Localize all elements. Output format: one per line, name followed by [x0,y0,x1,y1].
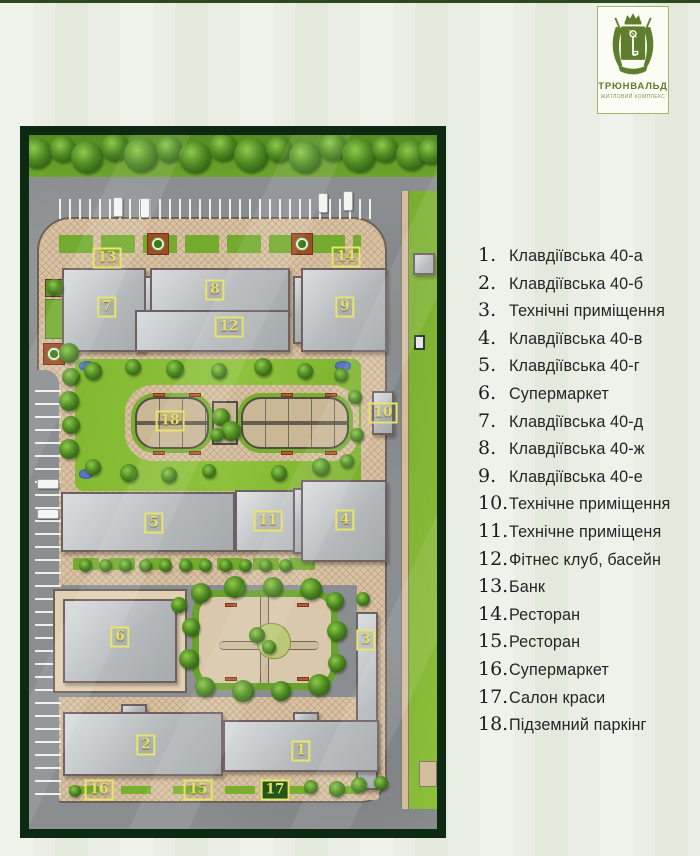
tree-icon [59,391,79,411]
legend-item-11: 11.Технічне приміщеня [478,522,693,550]
legend-item-number: 2. [478,274,509,293]
legend-item-number: 12. [478,550,509,569]
bench-icon [189,393,201,397]
map-marker-15: 15 [184,780,213,801]
legend-item-number: 16. [478,660,509,679]
tree-icon [312,458,330,476]
tree-icon [62,416,80,434]
legend-item-label: Клавдіївська 40-б [509,276,643,292]
map-marker-7: 7 [97,297,116,318]
tree-icon [62,368,80,386]
tree-icon [340,454,354,468]
tree-icon [297,363,313,379]
utility-box [414,335,425,350]
tree-icon [85,459,101,475]
map-marker-10: 10 [369,403,398,424]
map-marker-5: 5 [144,513,163,534]
tree-icon [171,597,187,613]
page: ТРЮНВАЛЬД ЖИТЛОВИЙ КОМПЛЕКС [0,0,700,856]
lawn-right [409,191,437,809]
tree-icon [224,576,246,598]
legend-item-number: 11. [478,522,509,541]
map-marker-13: 13 [93,248,122,269]
map-marker-6: 6 [110,627,129,648]
tree-icon [179,559,192,572]
tree-icon [300,578,322,600]
parked-car-icon [37,479,59,489]
legend-item-label: Клавдіївська 40-г [509,358,640,374]
legend-item-3: 3.Технічні приміщення [478,301,693,329]
parking-stripes-left [35,381,61,795]
tree-icon [279,559,292,572]
legend-item-17: 17.Салон краси [478,688,693,716]
legend: 1.Клавдіївська 40-а2.Клавдіївська 40-б3.… [478,246,693,743]
entrance-structure [413,253,435,275]
tree-icon [79,559,92,572]
bench-icon [225,603,237,607]
tree-icon [271,681,291,701]
crest-icon [605,12,661,78]
legend-item-2: 2.Клавдіївська 40-б [478,274,693,302]
legend-item-label: Клавдіївська 40-е [509,469,643,485]
legend-item-15: 15.Ресторан [478,632,693,660]
legend-item-label: Фітнес клуб, басейн [509,552,661,568]
parked-car-icon [113,197,123,217]
site-plan-map: 123456789101112131415161718 [29,135,437,829]
legend-item-number: 9. [478,467,509,486]
tree-icon [71,141,103,173]
tree-icon [59,439,79,459]
legend-item-number: 1. [478,246,509,265]
parked-car-icon [37,509,59,519]
tree-icon [334,368,348,382]
map-marker-14: 14 [332,247,361,268]
map-marker-12: 12 [215,317,244,338]
legend-item-number: 18. [478,715,509,734]
map-marker-16: 16 [85,780,114,801]
tree-icon [254,358,272,376]
legend-item-number: 13. [478,577,509,596]
legend-item-number: 4. [478,329,509,348]
legend-item-4: 4.Клавдіївська 40-в [478,329,693,357]
tree-icon [99,559,112,572]
tree-icon [304,780,318,794]
tree-icon [161,467,177,483]
tree-icon [195,677,215,697]
logo-title: ТРЮНВАЛЬД [598,81,668,92]
tree-icon [179,649,199,669]
legend-item-label: Ресторан [509,607,580,623]
tree-icon [234,138,268,172]
tree-icon [262,640,276,654]
legend-item-number: 17. [478,688,509,707]
site-plan-frame: 123456789101112131415161718 [20,126,446,838]
tree-icon [348,390,362,404]
legend-item-18: 18.Підземний паркінг [478,715,693,743]
map-marker-18: 18 [156,411,185,432]
tree-icon [327,621,347,641]
logo: ТРЮНВАЛЬД ЖИТЛОВИЙ КОМПЛЕКС [597,6,669,114]
legend-item-number: 7. [478,412,509,431]
tree-icon [211,363,227,379]
bench-icon [153,393,165,397]
bench-icon [225,677,237,681]
tree-icon [372,136,398,162]
legend-item-9: 9.Клавдіївська 40-е [478,467,693,495]
tree-icon [182,618,200,636]
legend-item-number: 3. [478,301,509,320]
legend-item-label: Супермаркет [509,662,609,678]
tree-icon [124,138,158,172]
bench-icon [325,451,337,455]
tree-icon [199,559,212,572]
map-marker-8: 8 [205,280,224,301]
legend-item-label: Підземний паркінг [509,717,647,733]
tree-icon [328,654,346,672]
map-marker-1: 1 [291,741,310,762]
parterre-garden-right [241,397,349,449]
parked-car-icon [140,198,150,218]
legend-item-label: Клавдіївська 40-д [509,414,643,430]
map-marker-2: 2 [136,735,155,756]
legend-item-13: 13.Банк [478,577,693,605]
tree-icon [120,464,138,482]
tree-icon [191,583,211,603]
legend-item-14: 14.Ресторан [478,605,693,633]
map-marker-3: 3 [356,630,375,651]
tree-icon [271,465,287,481]
legend-item-number: 10. [478,494,509,513]
tree-icon [263,577,283,597]
parked-car-icon [318,193,328,213]
legend-item-label: Ресторан [509,634,580,650]
tree-icon [159,559,172,572]
legend-item-10: 10.Технічне приміщення [478,494,693,522]
logo-subtitle: ЖИТЛОВИЙ КОМПЛЕКС [601,94,666,100]
tree-icon [249,627,265,643]
flowerbed-medallion [291,233,313,255]
tree-icon [351,777,367,793]
tree-icon [166,360,184,378]
bench-icon [281,451,293,455]
legend-item-label: Клавдіївська 40-ж [509,441,645,457]
tree-icon [125,359,141,375]
legend-item-7: 7.Клавдіївська 40-д [478,412,693,440]
tree-icon [289,141,321,173]
tree-icon [219,559,232,572]
tree-icon [139,559,152,572]
tree-icon [259,559,272,572]
bench-icon [189,451,201,455]
bench-icon [297,603,309,607]
tree-icon [356,592,370,606]
map-marker-9: 9 [335,297,354,318]
tree-icon [202,464,216,478]
path-corner-tile [419,761,437,787]
tree-icon [239,559,252,572]
bench-icon [281,393,293,397]
tree-icon [59,343,79,363]
tree-icon [84,362,102,380]
legend-item-number: 15. [478,632,509,651]
legend-item-16: 16.Супермаркет [478,660,693,688]
map-marker-17: 17 [261,780,290,801]
building-12 [135,310,290,352]
top-divider-line [0,0,700,3]
tree-icon [350,428,364,442]
bench-icon [297,677,309,681]
tree-icon [418,138,437,164]
legend-item-12: 12.Фітнес клуб, басейн [478,550,693,578]
legend-item-label: Банк [509,579,545,595]
legend-item-label: Технічне приміщеня [509,524,661,540]
tree-icon [308,674,330,696]
tree-icon [374,776,388,790]
tree-icon [47,279,63,295]
legend-item-label: Клавдіївська 40-в [509,331,642,347]
path-right [401,191,409,809]
bench-icon [153,451,165,455]
legend-item-label: Технічне приміщення [509,496,670,512]
tree-icon [232,680,254,702]
legend-item-label: Салон краси [509,690,605,706]
flowerbed-medallion [147,233,169,255]
map-marker-4: 4 [335,510,354,531]
legend-item-number: 14. [478,605,509,624]
legend-item-label: Супермаркет [509,386,609,402]
map-marker-11: 11 [254,511,283,532]
tree-icon [329,781,345,797]
tree-icon [179,141,211,173]
tree-icon [119,559,132,572]
hedge-tile [45,299,63,339]
legend-item-number: 5. [478,356,509,375]
legend-item-6: 6.Супермаркет [478,384,693,412]
legend-item-number: 8. [478,439,509,458]
legend-item-5: 5.Клавдіївська 40-г [478,356,693,384]
legend-item-label: Технічні приміщення [509,303,665,319]
tree-icon [342,138,376,172]
tree-icon [69,785,81,797]
legend-item-label: Клавдіївська 40-а [509,248,643,264]
legend-item-number: 6. [478,384,509,403]
legend-item-1: 1.Клавдіївська 40-а [478,246,693,274]
bench-icon [325,393,337,397]
tree-icon [210,428,224,442]
legend-item-8: 8.Клавдіївська 40-ж [478,439,693,467]
tree-icon [326,592,344,610]
tree-icon [221,421,241,441]
parked-car-icon [343,191,353,211]
